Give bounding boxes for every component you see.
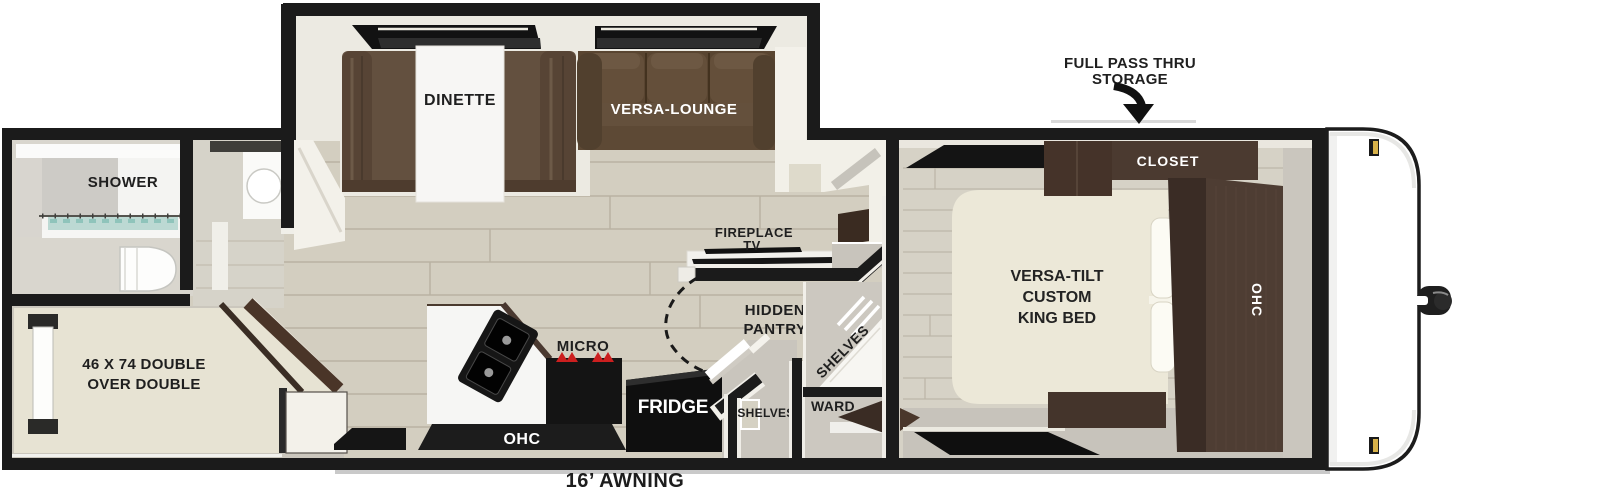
- svg-text:SHOWER: SHOWER: [88, 174, 159, 191]
- svg-text:FRIDGE: FRIDGE: [638, 397, 709, 418]
- svg-text:16’ AWNING: 16’ AWNING: [566, 470, 685, 488]
- svg-text:OHC: OHC: [503, 431, 540, 448]
- svg-text:OHC: OHC: [1249, 283, 1265, 317]
- svg-text:PANTRY: PANTRY: [744, 321, 807, 338]
- svg-text:KING BED: KING BED: [1018, 310, 1096, 327]
- svg-text:WARD: WARD: [811, 398, 855, 414]
- svg-text:CLOSET: CLOSET: [1137, 153, 1200, 169]
- svg-text:VERSA-LOUNGE: VERSA-LOUNGE: [611, 101, 738, 118]
- svg-text:OVER DOUBLE: OVER DOUBLE: [87, 376, 200, 393]
- svg-text:STORAGE: STORAGE: [1092, 71, 1168, 88]
- svg-text:TV: TV: [743, 238, 761, 253]
- svg-text:FULL PASS THRU: FULL PASS THRU: [1064, 55, 1196, 72]
- svg-text:SHELVES: SHELVES: [737, 406, 794, 420]
- svg-text:DINETTE: DINETTE: [424, 92, 496, 109]
- svg-text:46 X 74 DOUBLE: 46 X 74 DOUBLE: [82, 356, 205, 373]
- svg-text:VERSA-TILT: VERSA-TILT: [1010, 268, 1103, 285]
- svg-text:CUSTOM: CUSTOM: [1022, 289, 1091, 306]
- svg-text:HIDDEN: HIDDEN: [745, 302, 806, 319]
- svg-text:MICRO: MICRO: [557, 338, 610, 355]
